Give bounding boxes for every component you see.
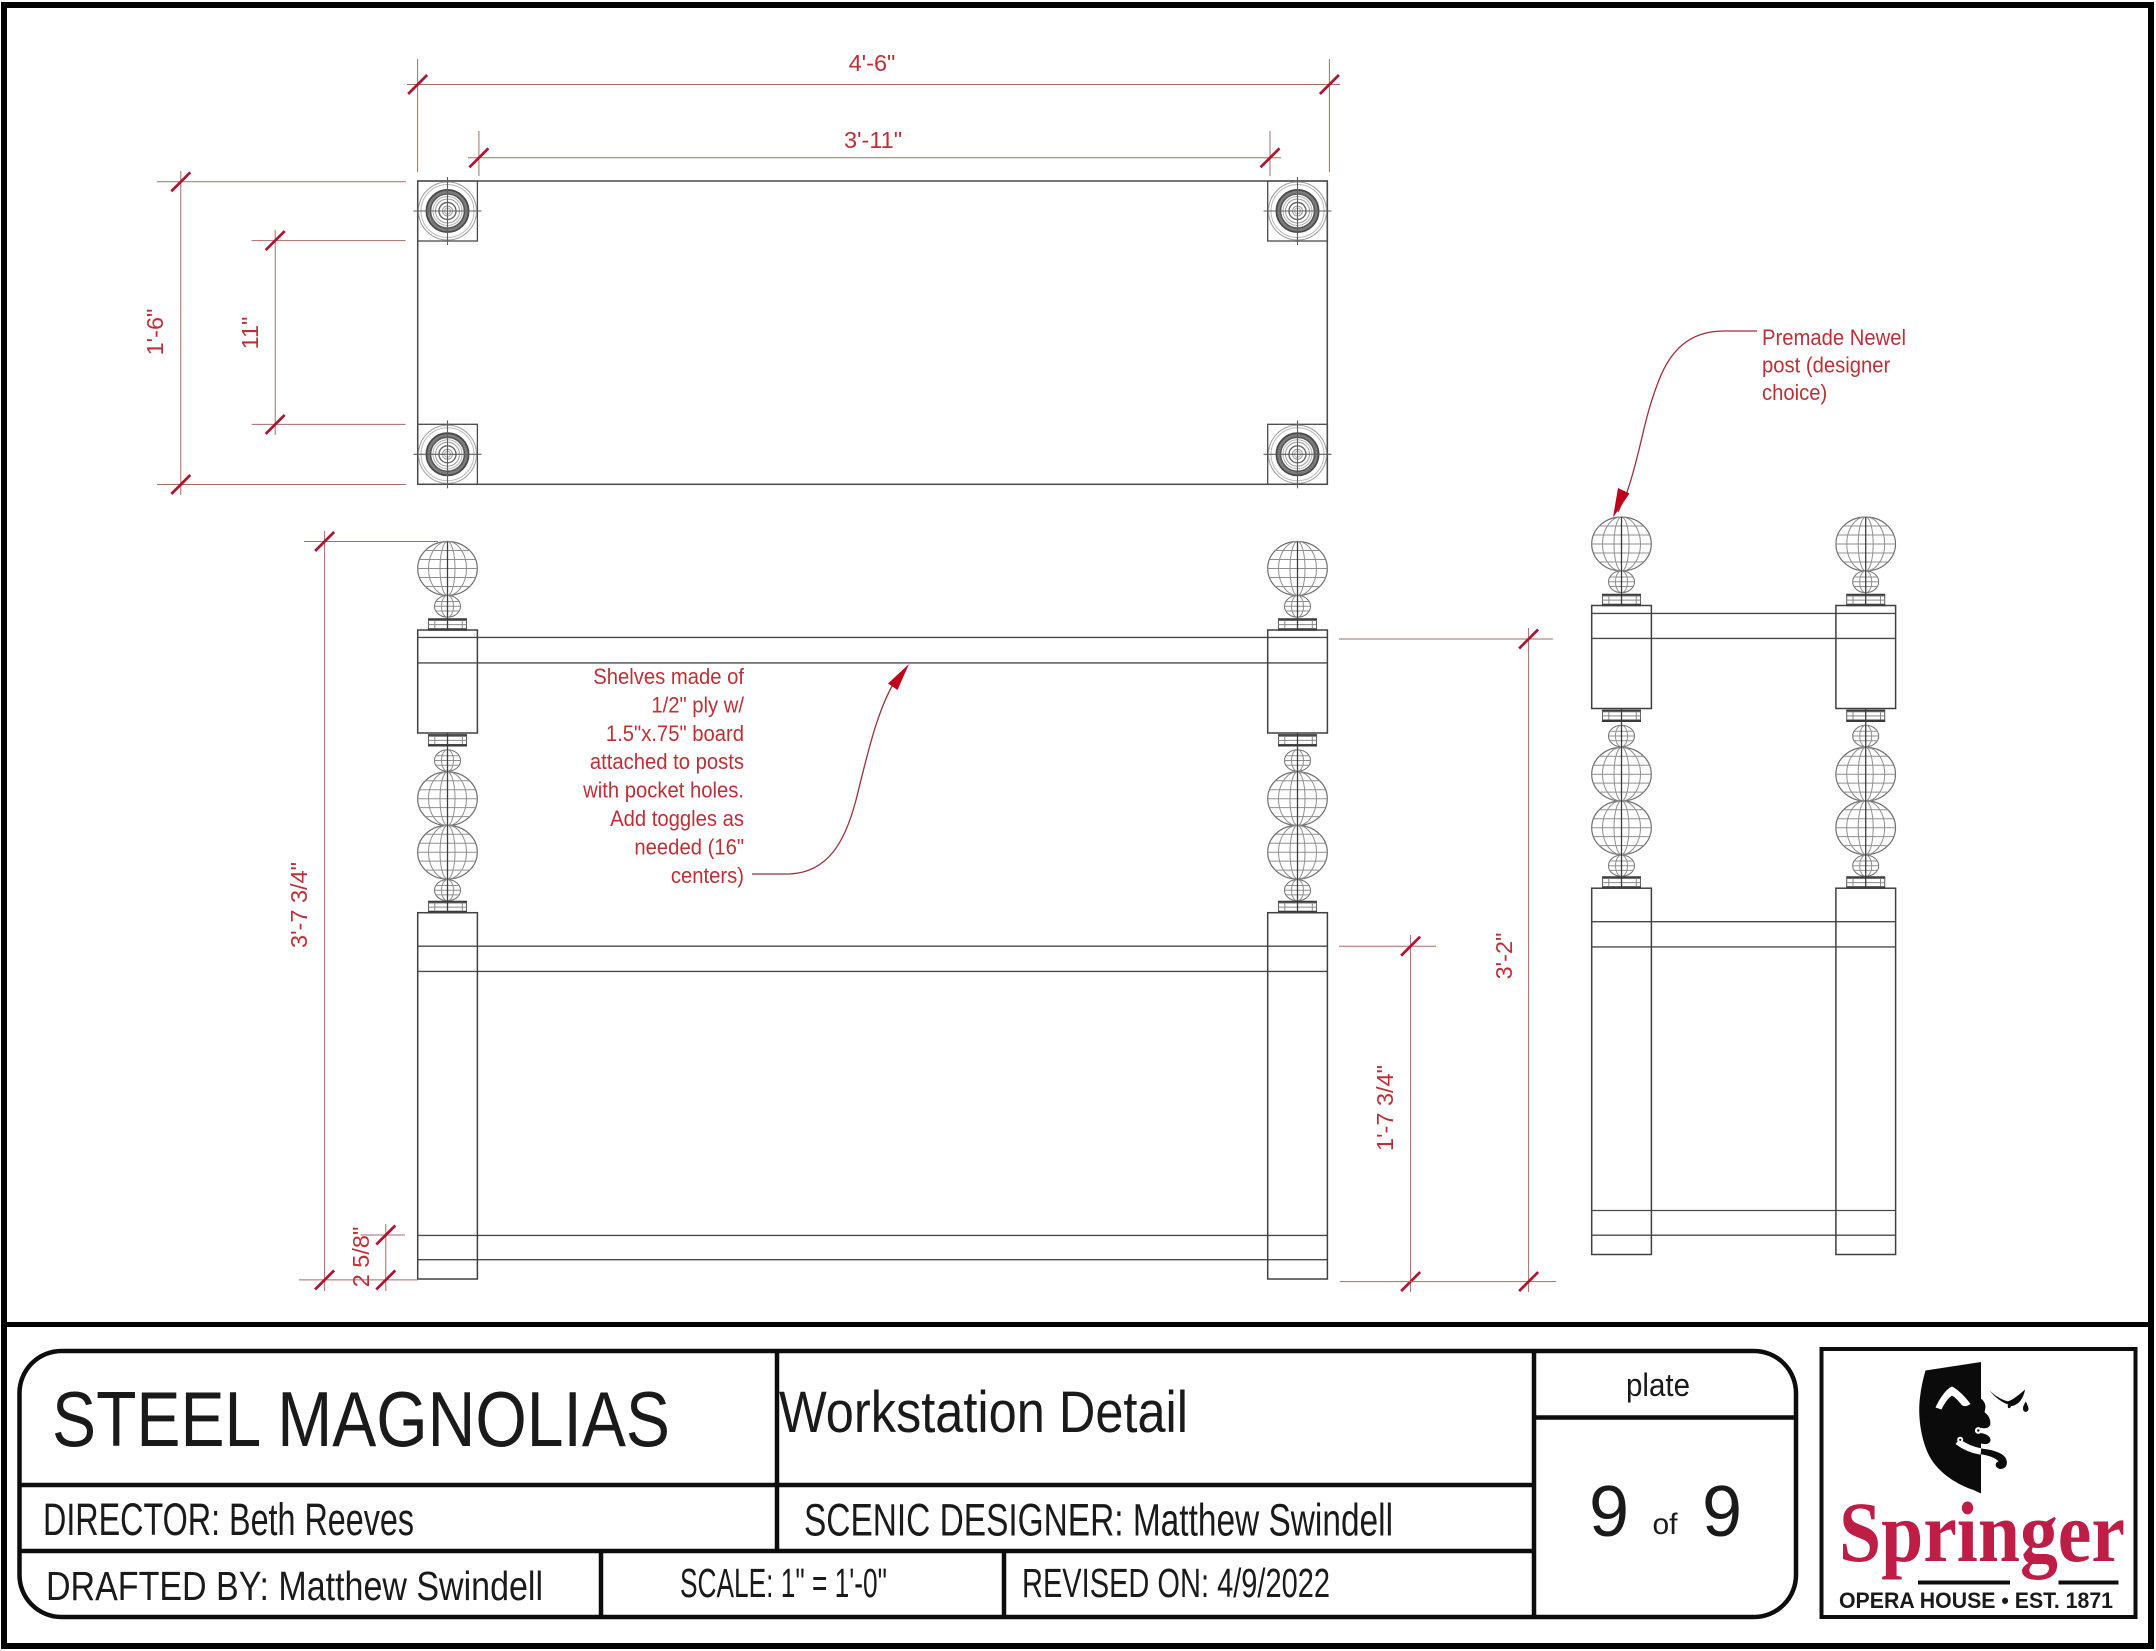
svg-text:plate: plate — [1626, 1367, 1690, 1403]
svg-text:REVISED ON: 4/9/2022: REVISED ON: 4/9/2022 — [1022, 1560, 1330, 1606]
svg-text:3'-2": 3'-2" — [1491, 933, 1517, 980]
svg-text:STEEL MAGNOLIAS: STEEL MAGNOLIAS — [52, 1375, 670, 1463]
svg-text:Springer: Springer — [1839, 1484, 2125, 1580]
svg-text:DIRECTOR: Beth Reeves: DIRECTOR: Beth Reeves — [43, 1494, 414, 1545]
svg-text:of: of — [1652, 1508, 1678, 1541]
svg-text:OPERA HOUSE • EST. 1871: OPERA HOUSE • EST. 1871 — [1839, 1588, 2113, 1613]
svg-text:3'-11": 3'-11" — [844, 127, 902, 153]
svg-text:DRAFTED BY: Matthew Swindell: DRAFTED BY: Matthew Swindell — [46, 1563, 543, 1609]
svg-text:3'-7 3/4": 3'-7 3/4" — [286, 862, 312, 948]
svg-text:1'-7 3/4": 1'-7 3/4" — [1372, 1065, 1398, 1151]
svg-text:11": 11" — [237, 317, 263, 350]
svg-text:9: 9 — [1702, 1472, 1742, 1552]
svg-text:SCENIC DESIGNER: Matthew Swind: SCENIC DESIGNER: Matthew Swindell — [804, 1495, 1393, 1546]
svg-text:1'-6": 1'-6" — [142, 309, 168, 356]
svg-text:Workstation Detail: Workstation Detail — [779, 1380, 1188, 1445]
svg-text:SCALE: 1" = 1'-0": SCALE: 1" = 1'-0" — [680, 1560, 887, 1606]
svg-text:2 5/8": 2 5/8" — [348, 1227, 374, 1288]
svg-text:4'-6": 4'-6" — [849, 50, 896, 76]
svg-text:9: 9 — [1589, 1472, 1629, 1552]
